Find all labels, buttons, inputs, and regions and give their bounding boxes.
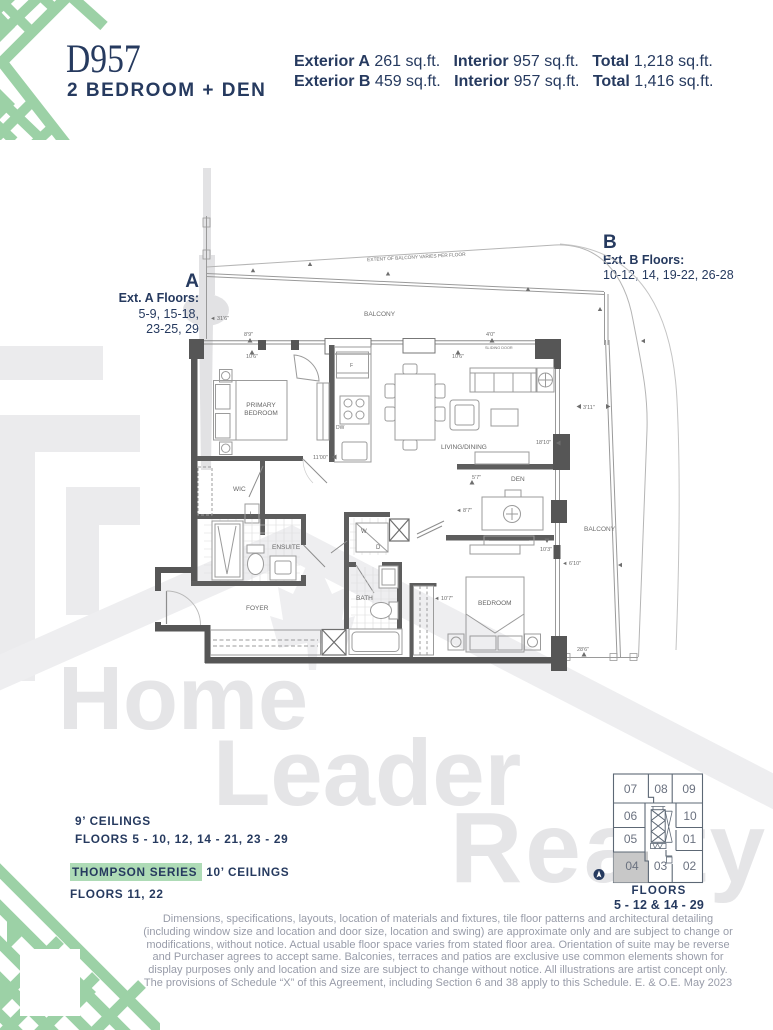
svg-text:◄ 10'7": ◄ 10'7" bbox=[434, 596, 453, 602]
svg-text:06: 06 bbox=[624, 809, 638, 823]
svg-text:FOYER: FOYER bbox=[246, 605, 269, 612]
svg-text:F: F bbox=[350, 363, 353, 369]
svg-text:DEN: DEN bbox=[511, 476, 525, 483]
svg-text:SLIDING DOOR: SLIDING DOOR bbox=[485, 346, 513, 350]
svg-text:5'7": 5'7" bbox=[472, 475, 481, 481]
svg-text:PRIMARY: PRIMARY bbox=[246, 402, 276, 409]
svg-text:L: L bbox=[250, 511, 254, 518]
svg-text:28'6": 28'6" bbox=[577, 647, 589, 653]
svg-text:◄ 31'6": ◄ 31'6" bbox=[210, 316, 229, 322]
svg-text:10'3": 10'3" bbox=[540, 547, 552, 553]
svg-text:BEDROOM: BEDROOM bbox=[478, 600, 512, 607]
svg-text:10: 10 bbox=[683, 809, 697, 823]
svg-text:DW: DW bbox=[336, 425, 345, 431]
svg-text:08: 08 bbox=[654, 782, 668, 796]
svg-text:11'00": 11'00" bbox=[313, 455, 328, 461]
svg-text:8'9": 8'9" bbox=[244, 332, 253, 338]
svg-text:01: 01 bbox=[683, 832, 697, 846]
svg-text:LIVING/DINING: LIVING/DINING bbox=[441, 444, 487, 451]
svg-text:BATH: BATH bbox=[356, 595, 373, 602]
svg-text:18'10": 18'10" bbox=[536, 440, 551, 446]
svg-text:WIC: WIC bbox=[233, 486, 246, 493]
svg-text:05: 05 bbox=[624, 832, 638, 846]
svg-text:W: W bbox=[361, 529, 367, 535]
svg-text:02: 02 bbox=[683, 859, 697, 873]
svg-text:07: 07 bbox=[624, 782, 638, 796]
svg-text:BALCONY: BALCONY bbox=[364, 311, 396, 318]
svg-text:10'6": 10'6" bbox=[452, 354, 464, 360]
svg-text:◄ 6'10": ◄ 6'10" bbox=[562, 561, 581, 567]
svg-text:09: 09 bbox=[682, 782, 696, 796]
svg-text:3'11": 3'11" bbox=[583, 405, 595, 411]
svg-text:4'0": 4'0" bbox=[486, 332, 495, 338]
svg-text:03: 03 bbox=[654, 859, 668, 873]
svg-text:◄ 8'7": ◄ 8'7" bbox=[456, 508, 472, 514]
svg-text:BEDROOM: BEDROOM bbox=[244, 410, 278, 417]
svg-text:D: D bbox=[376, 545, 381, 551]
svg-text:04: 04 bbox=[625, 859, 639, 873]
svg-text:10'6": 10'6" bbox=[246, 354, 258, 360]
svg-text:ENSUITE: ENSUITE bbox=[272, 544, 301, 551]
svg-text:BALCONY: BALCONY bbox=[584, 526, 616, 533]
